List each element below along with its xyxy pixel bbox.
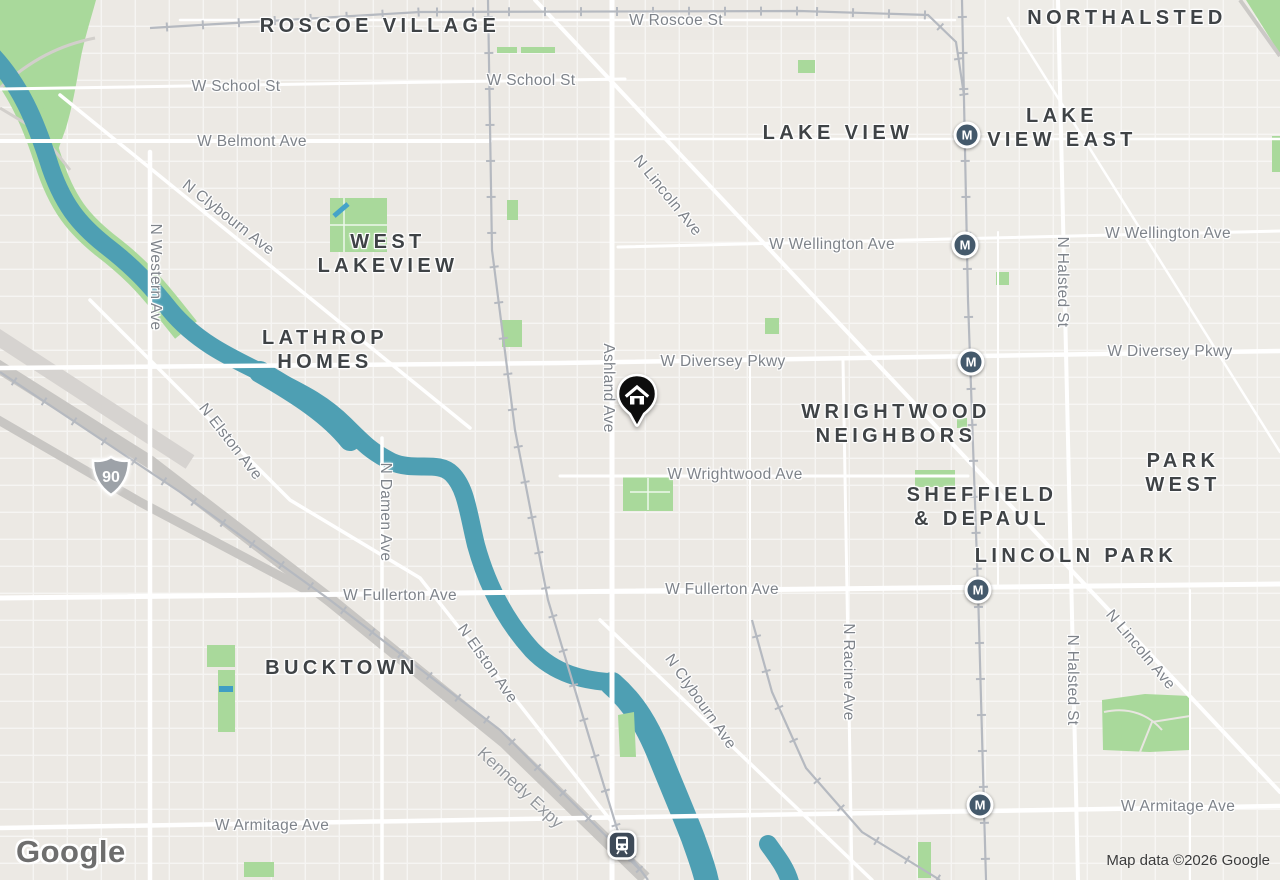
metro-station-marker[interactable]: M: [965, 577, 992, 604]
metro-station-letter: M: [975, 799, 986, 812]
riverside-green: [618, 712, 636, 757]
base-map: [0, 0, 1280, 880]
shield-route-number: 90: [102, 469, 120, 486]
metro-station-marker[interactable]: M: [958, 349, 985, 376]
train-station-marker[interactable]: [607, 830, 637, 865]
home-marker[interactable]: [615, 373, 659, 434]
metro-station-letter: M: [966, 356, 977, 369]
metro-station-letter: M: [960, 239, 971, 252]
metro-station-letter: M: [962, 129, 973, 142]
map-attribution: Map data ©2026 Google: [1106, 852, 1270, 869]
metro-station-letter: M: [973, 584, 984, 597]
metro-station-marker[interactable]: M: [954, 122, 981, 149]
metro-station-marker[interactable]: M: [952, 232, 979, 259]
interstate-90-shield: 90: [89, 453, 133, 504]
google-logo[interactable]: Google: [16, 834, 126, 870]
metro-station-marker[interactable]: M: [967, 792, 994, 819]
map-canvas[interactable]: ROSCOE VILLAGENORTHALSTEDLAKE VIEWLAKE V…: [0, 0, 1280, 880]
